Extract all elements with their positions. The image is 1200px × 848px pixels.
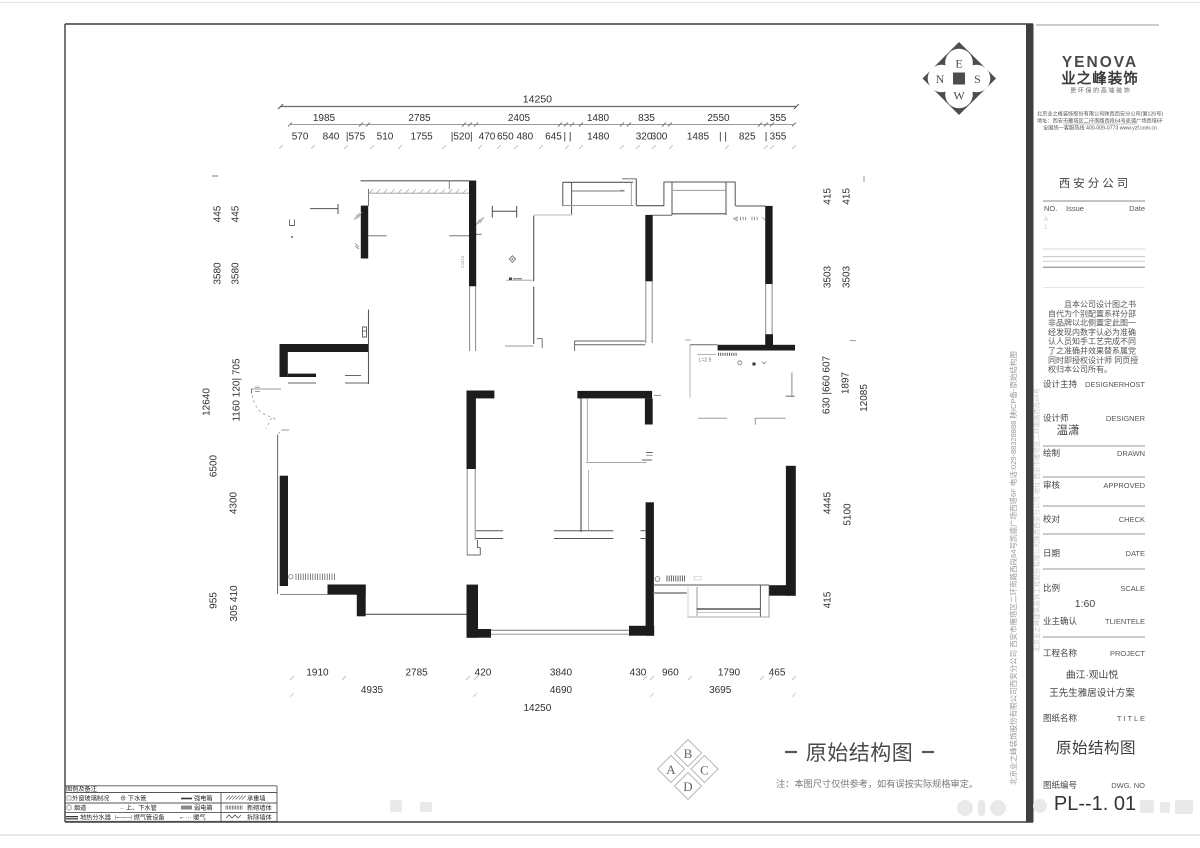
svg-text:图纸名称: 图纸名称 (1043, 713, 1078, 723)
svg-text:4690: 4690 (550, 685, 573, 696)
svg-text:1:60: 1:60 (1075, 598, 1096, 610)
svg-text:960: 960 (662, 668, 679, 679)
svg-text:DATE: DATE (1126, 549, 1145, 558)
svg-text:465: 465 (769, 668, 786, 679)
svg-text:YENOVA: YENOVA (1062, 54, 1138, 71)
svg-text:L=2.9: L=2.9 (699, 358, 712, 364)
svg-text:◎外窗玻璃制况: ◎外窗玻璃制况 (66, 795, 109, 803)
svg-text:14250: 14250 (523, 94, 552, 106)
svg-text:新砌墙体: 新砌墙体 (247, 804, 273, 812)
svg-text:强电箱: 强电箱 (194, 795, 213, 803)
svg-text:CHECK: CHECK (1119, 515, 1145, 524)
svg-text:更 环 保 的 高 端 装 饰: 更 环 保 的 高 端 装 饰 (1070, 87, 1130, 95)
svg-text:Issue: Issue (1066, 204, 1084, 213)
svg-text:| |: | | (564, 132, 572, 143)
svg-text:权归本公司所有。: 权归本公司所有。 (1048, 364, 1112, 374)
svg-text:地热分水器: 地热分水器 (80, 814, 112, 822)
svg-text:825: 825 (739, 132, 756, 143)
svg-text:设计师: 设计师 (1043, 413, 1069, 423)
svg-text:业之峰装饰: 业之峰装饰 (1061, 70, 1139, 88)
svg-text:3840: 3840 (550, 668, 573, 679)
svg-text:图纸编号: 图纸编号 (1043, 780, 1077, 790)
svg-text:1910: 1910 (306, 668, 329, 679)
svg-text:DWG. NO: DWG. NO (1111, 781, 1145, 790)
svg-text:445: 445 (213, 205, 224, 222)
svg-text:弱电箱: 弱电箱 (194, 804, 213, 812)
svg-text:430: 430 (630, 668, 647, 679)
svg-text:A: A (666, 762, 676, 777)
svg-text:同时即授权设计师 同页授: 同时即授权设计师 同页授 (1048, 355, 1138, 365)
svg-text:3503: 3503 (842, 265, 853, 288)
svg-text:955: 955 (209, 592, 220, 609)
svg-text:Date: Date (1129, 204, 1145, 213)
svg-text:且本公司设计图之书: 且本公司设计图之书 (1048, 299, 1136, 309)
svg-text:1160 120| 705: 1160 120| 705 (232, 358, 243, 421)
svg-text:12085: 12085 (859, 384, 870, 412)
svg-text:温潇: 温潇 (1057, 423, 1080, 437)
svg-text:曲江·观山悦: 曲江·观山悦 (1066, 668, 1118, 681)
svg-text:645: 645 (545, 132, 562, 143)
svg-text:B: B (684, 746, 693, 761)
svg-text:415: 415 (823, 591, 834, 608)
svg-text:3580: 3580 (213, 262, 224, 285)
svg-text:2405: 2405 (508, 113, 531, 124)
svg-text:|575: |575 (346, 132, 366, 143)
svg-text:D: D (683, 779, 692, 794)
svg-text:SCALE: SCALE (1120, 584, 1145, 593)
svg-text:|: | (765, 132, 768, 143)
svg-text:3695: 3695 (709, 685, 732, 696)
svg-text:1897: 1897 (841, 371, 852, 394)
svg-text:拆除墙体: 拆除墙体 (247, 814, 273, 822)
svg-text:355: 355 (770, 113, 787, 124)
svg-text:1485: 1485 (687, 132, 710, 143)
svg-text:校对: 校对 (1043, 514, 1061, 524)
svg-text:DRAWN: DRAWN (1117, 449, 1145, 458)
svg-text:工程名称: 工程名称 (1043, 648, 1078, 658)
svg-text:840: 840 (323, 132, 340, 143)
svg-text:1755: 1755 (410, 132, 433, 143)
svg-text:⊕ 下水管: ⊕ 下水管 (120, 795, 146, 803)
svg-text:3503: 3503 (823, 265, 834, 288)
svg-text:1985: 1985 (313, 113, 336, 124)
svg-text:1480: 1480 (587, 113, 610, 124)
svg-text:2785: 2785 (405, 668, 428, 679)
svg-text:图例及备注: 图例及备注 (66, 785, 97, 793)
svg-text:835: 835 (638, 113, 655, 124)
svg-text:305 410: 305 410 (229, 585, 240, 622)
svg-text:APPROVED: APPROVED (1103, 481, 1145, 490)
svg-text:470: 470 (479, 132, 496, 143)
svg-text:⊢—⊣ 燃气管设备: ⊢—⊣ 燃气管设备 (115, 814, 165, 822)
svg-text:·· 上、下水管: ·· 上、下水管 (120, 804, 157, 812)
svg-text:审核: 审核 (1043, 480, 1061, 490)
svg-text:4445: 4445 (823, 491, 834, 514)
svg-text:设计主持: 设计主持 (1043, 379, 1078, 389)
svg-text:北京业之峰装饰股份有限公司西安分公司 西安市雁塔区二环南路西: 北京业之峰装饰股份有限公司西安分公司 西安市雁塔区二环南路西段64号凯德广场西塔… (1008, 351, 1018, 785)
svg-text:415: 415 (842, 188, 853, 205)
svg-text:NO.: NO. (1044, 204, 1057, 213)
svg-text:480: 480 (516, 132, 533, 143)
svg-text:12640: 12640 (202, 388, 213, 416)
svg-text:业主确认: 业主确认 (1043, 616, 1078, 626)
svg-text:650: 650 (497, 132, 514, 143)
svg-text:经发现内数字认必为准确: 经发现内数字认必为准确 (1048, 327, 1136, 337)
svg-text:C: C (700, 763, 709, 778)
svg-text:王先生雅居设计方案: 王先生雅居设计方案 (1049, 687, 1135, 699)
svg-text:承重墙: 承重墙 (247, 795, 266, 803)
svg-text:3580: 3580 (231, 262, 242, 285)
svg-text:地址：西安市雁塔区二环南路西段64号凯德广场西塔6F: 地址：西安市雁塔区二环南路西段64号凯德广场西塔6F (1037, 117, 1163, 125)
svg-text:日期: 日期 (1043, 548, 1060, 558)
svg-text:⌐ ··· 暖气: ⌐ ··· 暖气 (180, 814, 206, 822)
svg-text:N: N (936, 72, 945, 86)
svg-text:比例: 比例 (1043, 583, 1060, 593)
svg-text:◎ 烟道: ◎ 烟道 (66, 804, 86, 812)
svg-text:T I T L E: T I T L E (1117, 714, 1145, 723)
svg-text:355: 355 (770, 132, 787, 143)
svg-text:300: 300 (651, 132, 668, 143)
svg-text:5100: 5100 (843, 503, 854, 526)
svg-text:非品牌以北侧置定此图一: 非品牌以北侧置定此图一 (1048, 318, 1136, 328)
svg-text:了之准确并效果替系属党: 了之准确并效果替系属党 (1048, 346, 1136, 356)
svg-text:PL--1. 01: PL--1. 01 (1054, 793, 1136, 815)
svg-text:2785: 2785 (408, 113, 431, 124)
svg-text:W: W (953, 89, 965, 103)
svg-text:PROJECT: PROJECT (1110, 649, 1145, 658)
svg-text:北京业之峰建筑装饰工程股份有限公司陕西西安分公司 地址:西安: 北京业之峰建筑装饰工程股份有限公司陕西西安分公司 地址:西安市雁塔区二环南路西段… (1032, 387, 1041, 652)
svg-text:TLIENTELE: TLIENTELE (1105, 617, 1145, 626)
svg-text:14250: 14250 (523, 703, 551, 714)
svg-text:DESIGNERHOST: DESIGNERHOST (1085, 380, 1145, 389)
svg-text:|520|: |520| (451, 132, 473, 143)
svg-text:西安分公司: 西安分公司 (1059, 176, 1132, 190)
svg-text:4935: 4935 (361, 685, 384, 696)
svg-text:自代为个别配置系祥分部: 自代为个别配置系祥分部 (1048, 308, 1136, 318)
svg-text:认人员知手工艺完成不同: 认人员知手工艺完成不同 (1048, 336, 1136, 346)
svg-text:| |: | | (719, 132, 727, 143)
svg-text:1480: 1480 (587, 132, 610, 143)
svg-text:注：本图尺寸仅供参考，如有误按实际规格审定。: 注：本图尺寸仅供参考，如有误按实际规格审定。 (776, 778, 978, 789)
svg-text:2550: 2550 (707, 113, 730, 124)
svg-text:C1815: C1815 (460, 255, 465, 268)
svg-text:A: A (1044, 217, 1048, 223)
svg-text:原始结构图: 原始结构图 (806, 741, 914, 765)
svg-text:570: 570 (292, 132, 309, 143)
svg-text:6500: 6500 (209, 454, 220, 477)
svg-text:630 |660 607: 630 |660 607 (822, 355, 833, 414)
svg-text:E: E (955, 57, 962, 71)
svg-text:DESIGNER: DESIGNER (1106, 414, 1146, 423)
svg-text:全国统一客服热线 400-009-0773 www.yzf.: 全国统一客服热线 400-009-0773 www.yzf.com.cn (1043, 124, 1157, 132)
svg-text:510: 510 (377, 132, 394, 143)
svg-text:1790: 1790 (718, 668, 741, 679)
svg-text:原始结构图: 原始结构图 (1056, 739, 1136, 757)
svg-text:4300: 4300 (229, 491, 240, 514)
svg-text:北京业之峰装饰股份有限公司陕西西安分公司(第126号): 北京业之峰装饰股份有限公司陕西西安分公司(第126号) (1037, 110, 1164, 118)
svg-text:415: 415 (823, 188, 834, 205)
svg-text:绘制: 绘制 (1043, 448, 1060, 458)
svg-text:S: S (974, 72, 981, 86)
svg-text:445: 445 (231, 205, 242, 222)
